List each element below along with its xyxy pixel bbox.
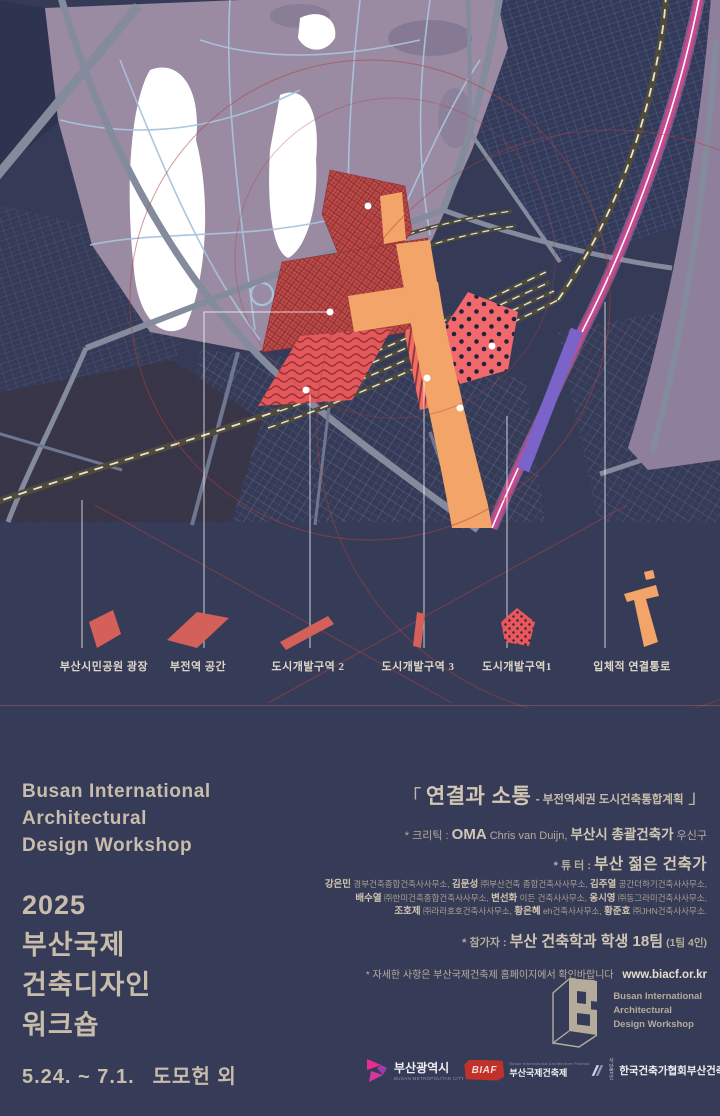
kira-busan-logo: 사단 법인 한국건축가협회부산건축가회 [590,1059,720,1081]
workshop-logo-text: Busan International Architectural Design… [613,990,702,1032]
workshop-b-mark-icon [539,973,601,1049]
legend-label: 도시개발구역1 [482,658,552,674]
korean-title-line: 워크숍 [22,1005,332,1045]
participants-note: (1팀 4인) [666,937,707,949]
legend-item-zone2: 도시개발구역 2 [254,600,362,674]
tutor-list: 강은민 경부건축종합건축사사무소, 김문성 ㈜부산건축 종합건축사사무소, 김주… [267,878,707,919]
critic-label: * 크리틱 : [405,830,452,842]
participants-main: 부산 건축학과 학생 18팀 [510,933,663,950]
biaf-acronym: BIAF [472,1065,497,1076]
critic-firm: OMA [452,826,487,843]
participants-line: * 참가자 : 부산 건축학과 학생 18팀 (1팀 4인) [267,930,707,951]
tutor-label: * 튜 터 : [554,860,594,872]
legend-item-station-space: 부전역 공간 [146,600,250,674]
event-date: 5.24. ~ 7.1.도모헌 외 [22,1060,237,1089]
legend-label: 부산시민공원 광장 [60,658,148,674]
critic-line: * 크리틱 : OMA Chris van Duijn, 부산시 총괄건축가 우… [267,823,707,843]
tutor-row: 조호제 ㈜라라호호건축사사무소, 황은혜 eh건축사사무소, 황준효 ㈜JHN건… [267,905,707,919]
partner-logos: 부산광역시 BUSAN METROPOLITAN CITY BIAF Busan… [365,1057,710,1083]
bracket-close: 」 [688,787,707,808]
workshop-logo-line: Architectural [613,1004,702,1018]
busan-city-logo: 부산광역시 BUSAN METROPOLITAN CITY [365,1057,464,1083]
biaf-logo: BIAF Busan International Architecture Fe… [464,1060,589,1081]
orange-connector-icon [600,570,664,652]
workshop-logo-line: Design Workshop [613,1018,702,1032]
red-rhombus-icon [81,600,127,652]
info-block: 「 연결과 소통 - 부전역세권 도시건축통합계획 」 * 크리틱 : OMA … [267,780,707,981]
legend-item-zone1: 도시개발구역1 [468,600,566,674]
tutor-row: 강은민 경부건축종합건축사사무소, 김문성 ㈜부산건축 종합건축사사무소, 김주… [267,878,707,892]
venue: 도모헌 외 [153,1066,237,1088]
kira-mark-icon [590,1062,604,1079]
poster: 부산시민공원 광장 부전역 공간 도시개발구역 2 도시개발구역 3 [0,0,720,1116]
workshop-logo: Busan International Architectural Design… [539,973,702,1049]
busan-city-sub: BUSAN METROPOLITAN CITY [394,1076,464,1081]
workshop-logo-line: Busan International [613,990,702,1004]
tutor-heading: * 튜 터 : 부산 젊은 건축가 [267,852,707,874]
critic-org: 부산시 총괄건축가 [570,827,673,842]
critic-person-kr: 우신구 [677,830,707,842]
bracket-open: 「 [402,787,421,808]
project-title-main: 연결과 소통 [426,785,531,808]
tutor-row: 배수열 ㈜한미건축종합건축사사무소, 변선화 이든 건축사사무소, 옹시영 ㈜동… [267,892,707,906]
tutor-heading-text: 부산 젊은 건축가 [594,856,707,873]
red-dotted-diamond-icon [495,600,539,652]
legend-label: 도시개발구역 3 [382,658,455,674]
red-diagonal-bar-icon [278,600,338,652]
legend-item-zone3: 도시개발구역 3 [368,600,468,674]
legend-label: 부전역 공간 [170,658,226,674]
critic-person-en: Chris van Duijn, [490,830,571,842]
busan-city-name: 부산광역시 [394,1059,449,1076]
legend-label: 도시개발구역 2 [272,658,345,674]
kira-name: 한국건축가협회부산건축가회 [619,1063,720,1078]
section-divider [0,705,720,706]
participants-label: * 참가자 : [462,937,509,949]
date-range: 5.24. ~ 7.1. [22,1066,135,1088]
urban-plan-map: 부산시민공원 광장 부전역 공간 도시개발구역 2 도시개발구역 3 [0,0,720,708]
red-parallelogram-icon [165,600,231,652]
legend-item-connector: 입체적 연결통로 [578,570,686,674]
legend-label: 입체적 연결통로 [593,658,671,674]
kira-prefix: 사단 법인 [608,1059,616,1081]
biaf-name: 부산국제건축제 [509,1066,567,1079]
busan-city-mark-icon [365,1057,389,1083]
red-small-bar-icon [403,600,433,652]
biaf-mark-icon: BIAF [464,1060,504,1081]
project-title: 「 연결과 소통 - 부전역세권 도시건축통합계획 」 [267,780,707,810]
project-title-sub: - 부전역세권 도시건축통합계획 [536,794,684,806]
